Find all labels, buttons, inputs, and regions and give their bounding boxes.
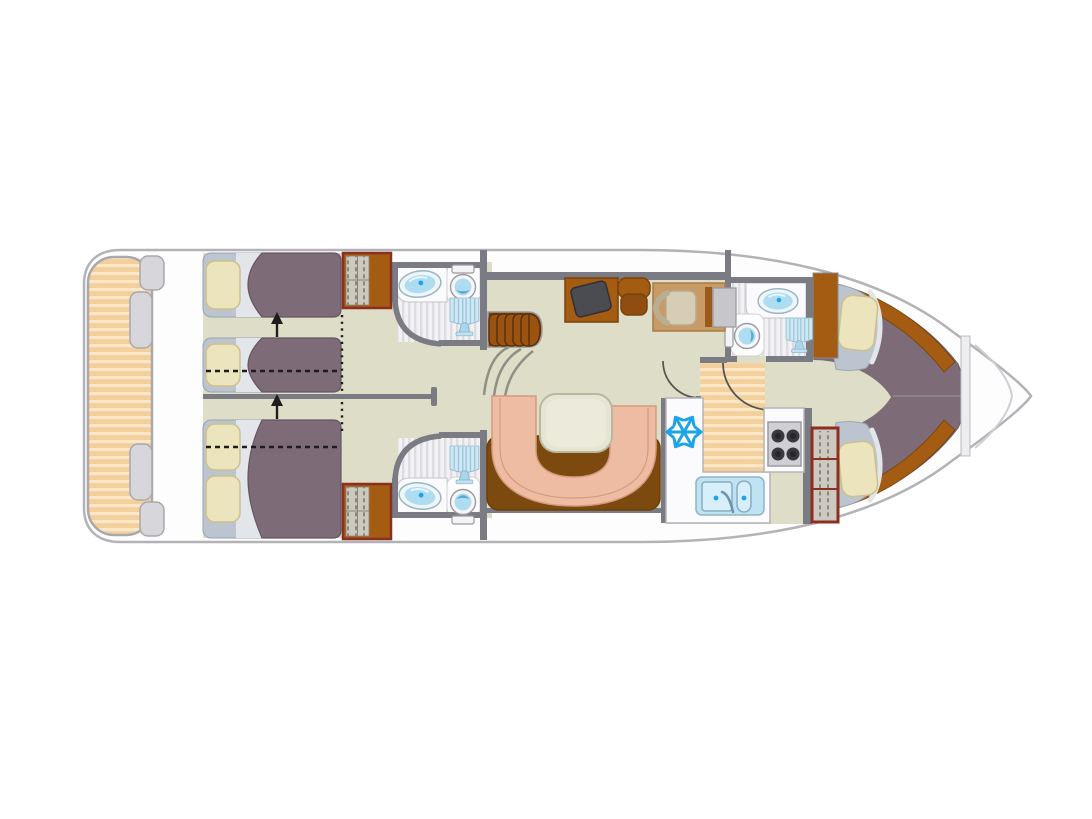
cabin-aft-bottom xyxy=(203,420,341,538)
galley-sink xyxy=(696,477,764,515)
toilet-icon xyxy=(451,265,476,300)
aft-sun-deck xyxy=(88,256,164,536)
transom-step xyxy=(130,292,152,348)
bedspread xyxy=(248,253,341,317)
bow-walkway xyxy=(767,362,814,406)
pillow xyxy=(206,476,240,522)
transom-step xyxy=(140,256,164,290)
chart-panel xyxy=(713,288,736,327)
transom-step xyxy=(130,444,152,500)
toilet-icon xyxy=(451,490,476,525)
bow-bulkhead xyxy=(961,336,970,456)
bedspread xyxy=(248,420,341,538)
washbasin-icon xyxy=(758,289,798,314)
boat-floor-plan xyxy=(0,0,1092,819)
galley-floor xyxy=(700,363,765,477)
bow-pillow-bottom xyxy=(837,440,878,497)
bow-pillow-top xyxy=(837,294,878,351)
dinette-table-top xyxy=(546,399,606,447)
pillow xyxy=(206,344,240,386)
pantry-cabinet xyxy=(812,428,838,522)
bedspread xyxy=(248,338,341,392)
bow-wardrobe-panel xyxy=(813,273,838,358)
transom-step xyxy=(140,502,164,536)
helm-seat xyxy=(666,291,696,325)
helm-console xyxy=(705,287,712,327)
wardrobe-top xyxy=(343,253,391,308)
armchair xyxy=(618,278,650,315)
wardrobe-bottom xyxy=(343,484,391,539)
helm-station xyxy=(653,283,736,331)
pillow xyxy=(206,261,240,309)
boat-floor-plan-page xyxy=(0,0,1092,819)
